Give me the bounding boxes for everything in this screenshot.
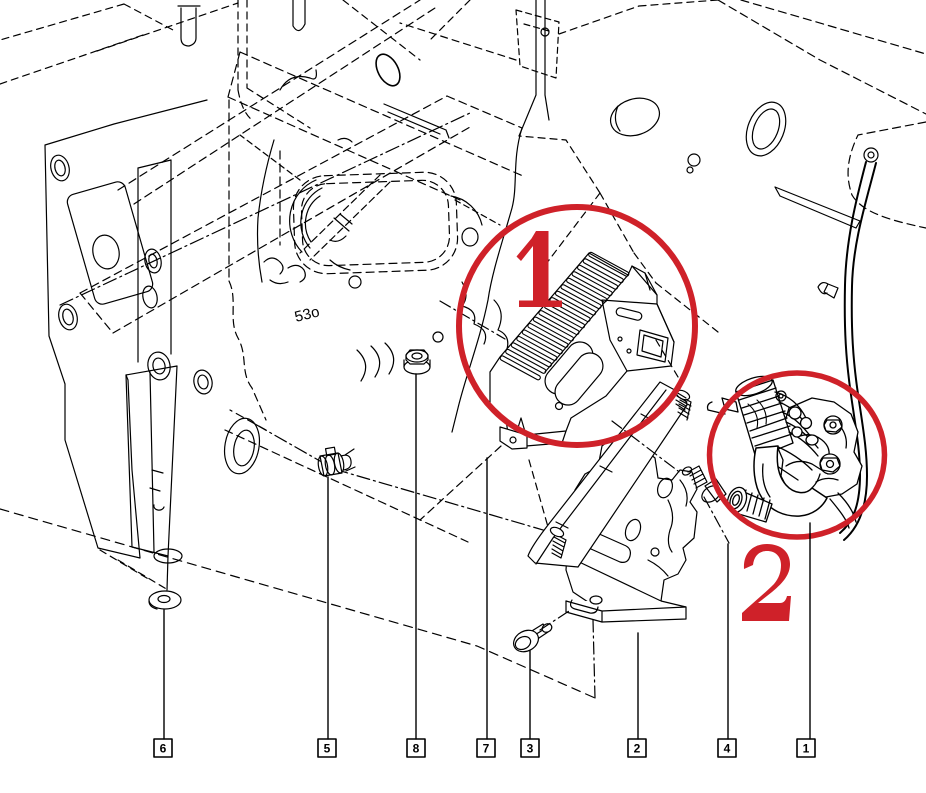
svg-text:1: 1 xyxy=(803,742,810,756)
svg-text:6: 6 xyxy=(160,742,167,756)
svg-text:8: 8 xyxy=(413,742,420,756)
svg-text:5: 5 xyxy=(324,742,331,756)
svg-text:2: 2 xyxy=(634,742,641,756)
svg-text:4: 4 xyxy=(724,742,731,756)
svg-text:7: 7 xyxy=(483,742,490,756)
svg-text:3: 3 xyxy=(527,742,534,756)
